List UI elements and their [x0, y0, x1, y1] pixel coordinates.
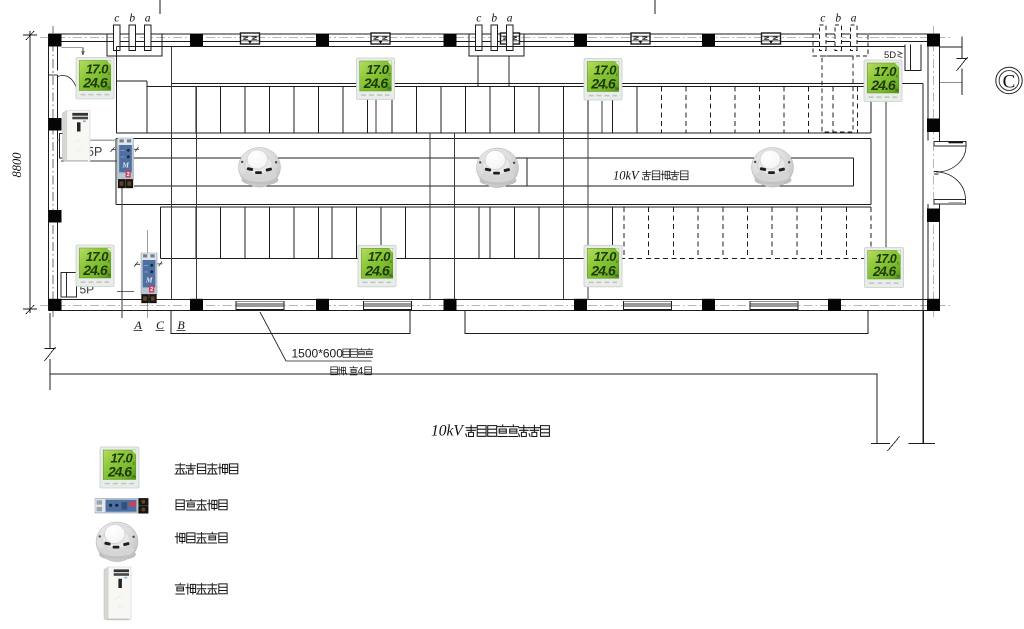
svg-text:5D: 5D — [884, 50, 896, 61]
svg-text:24.6: 24.6 — [107, 464, 132, 480]
svg-text:%: % — [615, 273, 620, 279]
svg-text:,: , — [345, 366, 348, 376]
svg-text:24.6: 24.6 — [872, 264, 897, 279]
svg-text:24.6: 24.6 — [82, 262, 108, 278]
svg-text:24.6: 24.6 — [590, 76, 616, 92]
svg-text:%: % — [387, 86, 392, 92]
svg-text:2: 2 — [150, 287, 153, 293]
svg-text:C: C — [1003, 72, 1016, 93]
svg-text:A: A — [133, 318, 142, 332]
svg-text:M: M — [145, 276, 153, 285]
svg-text:b: b — [129, 13, 135, 25]
svg-text:10kV: 10kV — [613, 169, 640, 183]
svg-text:8800: 8800 — [10, 152, 24, 178]
svg-text:%: % — [895, 88, 900, 94]
svg-text:a: a — [145, 13, 151, 25]
svg-text:a: a — [507, 13, 513, 25]
svg-text:b: b — [835, 13, 841, 25]
svg-text:%: % — [107, 85, 112, 91]
svg-text:2: 2 — [127, 172, 130, 178]
svg-text:24.6: 24.6 — [363, 75, 389, 91]
svg-text:b: b — [491, 13, 497, 25]
svg-text:c: c — [476, 13, 481, 25]
svg-text:24.6: 24.6 — [590, 262, 616, 278]
svg-text:%: % — [107, 273, 112, 279]
svg-text:24.6: 24.6 — [82, 75, 108, 91]
svg-text:24.6: 24.6 — [364, 262, 390, 278]
svg-text:a: a — [851, 13, 857, 25]
svg-text:%: % — [615, 86, 620, 92]
svg-text:10kV: 10kV — [431, 423, 464, 440]
svg-text:M: M — [121, 161, 129, 170]
svg-text:4: 4 — [358, 365, 364, 377]
svg-text:c: c — [114, 13, 119, 25]
svg-text:c: c — [820, 13, 825, 25]
svg-text:24.6: 24.6 — [870, 77, 896, 93]
svg-text:1500*600: 1500*600 — [292, 347, 344, 361]
svg-text:B: B — [177, 318, 185, 332]
svg-text:C: C — [156, 318, 165, 332]
svg-text:%: % — [389, 273, 394, 279]
svg-text:%: % — [132, 474, 136, 479]
svg-text:%: % — [896, 274, 900, 279]
